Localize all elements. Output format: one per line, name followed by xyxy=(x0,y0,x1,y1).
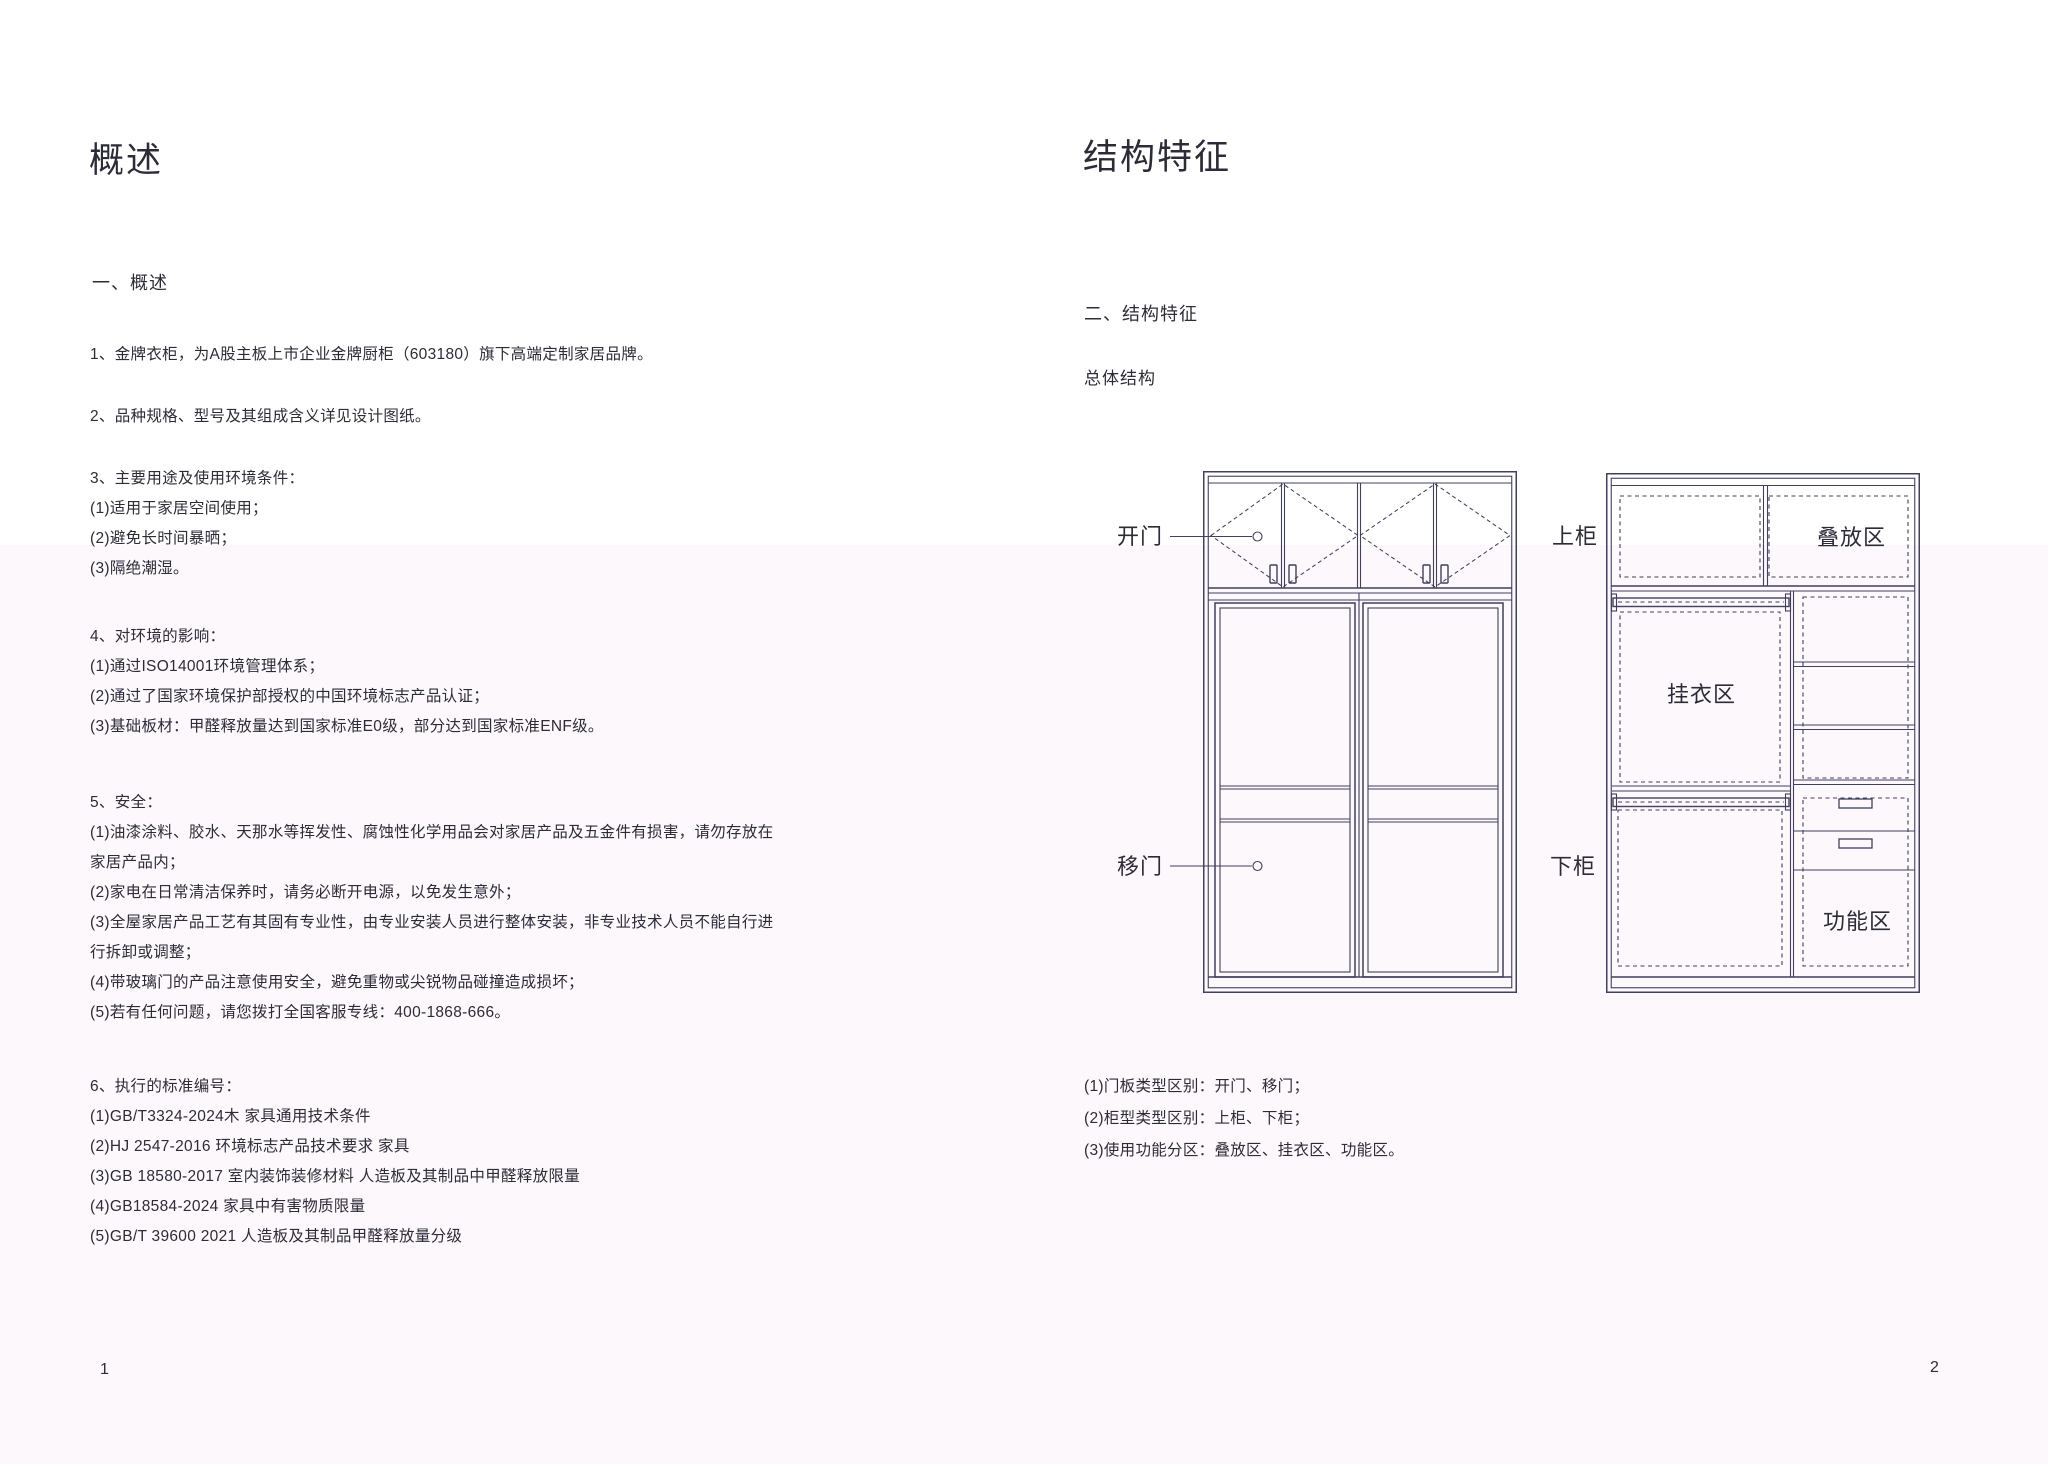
rod-bracket xyxy=(1612,794,1617,810)
rod-bracket xyxy=(1786,594,1791,611)
section6-item: (3)GB 18580-2017 室内装饰装修材料 人造板及其制品中甲醛释放限量 xyxy=(90,1167,580,1186)
section6-item: (1)GB/T3324-2024木 家具通用技术条件 xyxy=(90,1107,371,1126)
wardrobe-door-diagram xyxy=(1170,472,1516,993)
section6-item: (5)GB/T 39600 2021 人造板及其制品甲醛释放量分级 xyxy=(90,1227,462,1246)
door-handle xyxy=(1289,565,1296,583)
section4-item: (3)基础板材：甲醛释放量达到国家标准E0级，部分达到国家标准ENF级。 xyxy=(90,717,604,736)
page-title-structure: 结构特征 xyxy=(1083,136,1231,180)
section5-line: 家居产品内； xyxy=(90,853,185,872)
drawer-handle xyxy=(1839,839,1872,848)
rod-bracket xyxy=(1612,594,1617,611)
section4-heading: 4、对环境的影响： xyxy=(90,627,225,646)
section6-item: (4)GB18584-2024 家具中有害物质限量 xyxy=(90,1197,365,1216)
rod-bracket xyxy=(1786,794,1791,810)
lower-cabinet-sliding-doors xyxy=(1208,593,1512,977)
section5-line: (2)家电在日常清洁保养时，请务必断开电源，以免发生意外； xyxy=(90,883,521,902)
section3-item: (3)隔绝潮湿。 xyxy=(90,559,189,578)
hanging-zone-area xyxy=(1612,594,1791,966)
label-function-zone: 功能区 xyxy=(1823,908,1892,936)
section-heading-overview: 一、概述 xyxy=(92,272,168,295)
label-stacking-zone: 叠放区 xyxy=(1817,524,1886,552)
section5-line: (5)若有任何问题，请您拨打全国客服专线：400-1868-666。 xyxy=(90,1003,510,1022)
structure-note: (2)柜型类型区别：上柜、下柜； xyxy=(1084,1109,1309,1128)
section6-item: (2)HJ 2547-2016 环境标志产品技术要求 家具 xyxy=(90,1137,410,1156)
section-heading-structure: 二、结构特征 xyxy=(1084,303,1198,326)
section5-line: (1)油漆涂料、胶水、天那水等挥发性、腐蚀性化学用品会对家居产品及五金件有损害，… xyxy=(90,823,773,842)
drawer-handle xyxy=(1839,799,1872,808)
label-sliding-door: 移门 xyxy=(1117,853,1163,881)
page-title-overview: 概述 xyxy=(89,139,163,183)
label-lower-cabinet: 下柜 xyxy=(1550,853,1596,881)
label-upper-cabinet: 上柜 xyxy=(1552,523,1598,551)
section4-item: (1)通过ISO14001环境管理体系； xyxy=(90,657,324,676)
section5-heading: 5、安全： xyxy=(90,793,162,812)
page-number-right: 2 xyxy=(1930,1358,1939,1378)
door-handle xyxy=(1423,565,1430,583)
section4-item: (2)通过了国家环境保护部授权的中国环境标志产品认证； xyxy=(90,687,489,706)
section3-heading: 3、主要用途及使用环境条件： xyxy=(90,469,304,488)
section5-line: (3)全屋家居产品工艺有其固有专业性，由专业安装人员进行整体安装，非专业技术人员… xyxy=(90,913,773,932)
section6-heading: 6、执行的标准编号： xyxy=(90,1077,241,1096)
label-hanging-zone: 挂衣区 xyxy=(1667,681,1736,709)
section5-line: (4)带玻璃门的产品注意使用安全，避免重物或尖锐物品碰撞造成损坏； xyxy=(90,973,584,992)
sliding-door-leader-line xyxy=(1170,862,1262,871)
section3-item: (2)避免长时间暴晒； xyxy=(90,529,236,548)
paragraph-brand: 1、金牌衣柜，为A股主板上市企业金牌厨柜（603180）旗下高端定制家居品牌。 xyxy=(90,345,653,364)
structure-note: (3)使用功能分区：叠放区、挂衣区、功能区。 xyxy=(1084,1141,1404,1160)
subheading-overall-structure: 总体结构 xyxy=(1084,368,1156,389)
page-number-left: 1 xyxy=(100,1360,109,1380)
door-swing-mark xyxy=(1360,484,1510,587)
label-swing-door: 开门 xyxy=(1117,523,1163,551)
paragraph-spec: 2、品种规格、型号及其组成含义详见设计图纸。 xyxy=(90,407,431,426)
section5-line: 行拆卸或调整； xyxy=(90,943,201,962)
section3-item: (1)适用于家居空间使用； xyxy=(90,499,268,518)
structure-note: (1)门板类型区别：开门、移门； xyxy=(1084,1077,1309,1096)
